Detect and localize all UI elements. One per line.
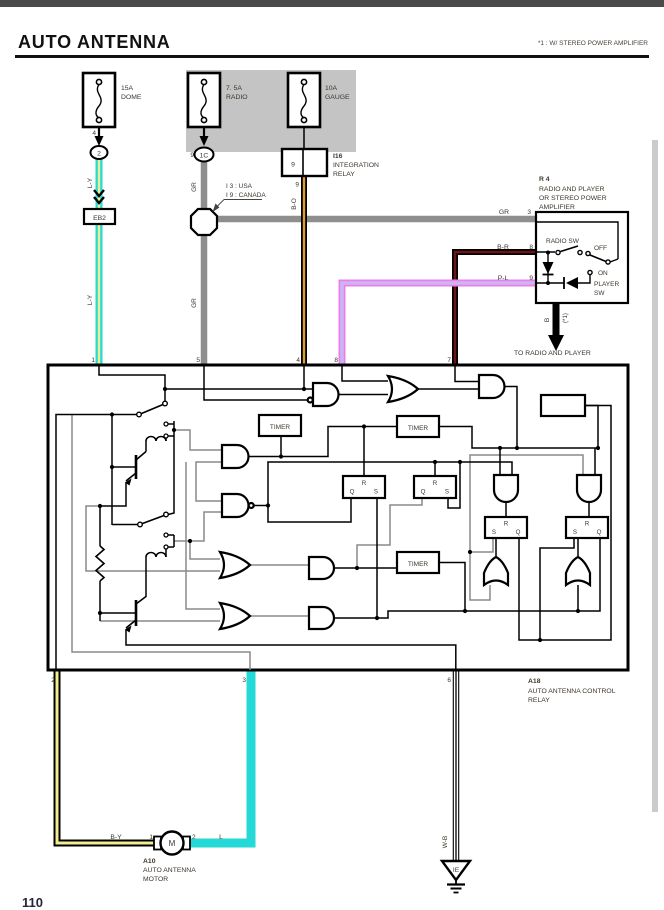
- label-wb: W-B: [442, 836, 449, 849]
- svg-text:R: R: [433, 480, 438, 487]
- nand-gate-b: [222, 494, 249, 517]
- r4-out-note: (*1): [562, 313, 569, 323]
- integration-relay: 9 I16 INTEGRATION RELAY 9: [282, 149, 379, 189]
- eb2-label: EB2: [93, 215, 106, 222]
- timer-3: TIMER: [397, 552, 439, 573]
- label-gr-horizontal: GR: [499, 209, 509, 216]
- a10-pin-left: 1: [149, 834, 153, 841]
- output-arrow-icon: [548, 335, 564, 351]
- fuse-dome: 15A DOME 4 2: [83, 73, 142, 159]
- a18-code: A18: [528, 678, 541, 685]
- nand-gate-g: [313, 383, 339, 406]
- a18-pin8: 8: [334, 357, 338, 364]
- label-ly-1: L-Y: [87, 177, 94, 188]
- r4-name1: RADIO AND PLAYER: [539, 186, 605, 193]
- r4-on-label: ON: [598, 270, 608, 277]
- fuse-radio-rating: 7. 5A: [226, 85, 242, 92]
- r4-radio-sw-label: RADIO SW: [546, 238, 580, 245]
- svg-text:S: S: [374, 489, 378, 496]
- label-gr-1: GR: [191, 182, 198, 192]
- r4-name2: OR STEREO POWER: [539, 195, 607, 202]
- ground-point: IE: [442, 861, 470, 893]
- r4-off-label: OFF: [594, 245, 607, 252]
- label-l: L: [219, 834, 223, 841]
- ground-label: IE: [453, 867, 460, 874]
- r4-pin-gr: 3: [527, 209, 531, 216]
- a18-pin4: 4: [296, 357, 300, 364]
- wire-br: [455, 252, 536, 365]
- fuse-gauge-name: GAUGE: [325, 94, 350, 101]
- a10-code: A10: [143, 858, 156, 865]
- connector-arrow-icon: [95, 136, 104, 146]
- flipflop-1: Q R S: [343, 476, 385, 498]
- r4-to-text: TO RADIO AND PLAYER: [514, 350, 591, 357]
- flipflop-3: S R Q: [485, 517, 527, 538]
- integration-relay-code: I16: [333, 153, 343, 160]
- a10-name1: AUTO ANTENNA: [143, 867, 196, 874]
- a10-name2: MOTOR: [143, 876, 168, 883]
- flipflop-4: S R Q: [566, 517, 608, 538]
- integration-relay-name1: INTEGRATION: [333, 162, 379, 169]
- page-number: 110: [22, 895, 43, 910]
- diagram-canvas: 15A DOME 4 2 7. 5A RADIO 9 1C 10A: [0, 0, 664, 910]
- fuse-dome-connector: 2: [97, 151, 101, 158]
- and-gate-a: [222, 445, 249, 468]
- label-by: B-Y: [110, 834, 122, 841]
- fuse-dome-name: DOME: [121, 94, 142, 101]
- label-bo: B-O: [291, 198, 298, 210]
- timer-2: TIMER: [397, 416, 439, 437]
- svg-text:S: S: [492, 529, 496, 536]
- svg-text:Q: Q: [516, 529, 521, 536]
- timer-1: TIMER: [259, 415, 301, 436]
- a18-pin6: 6: [447, 677, 451, 684]
- r4-out-wire: B: [544, 318, 551, 322]
- a18-name2: RELAY: [528, 697, 550, 704]
- logic-block: [541, 395, 585, 416]
- market-note-line1: I 3 : USA: [226, 183, 253, 190]
- fuse-radio-connector: 1C: [200, 153, 209, 160]
- a18-pin3: 3: [242, 677, 246, 684]
- and-gate-f: [309, 607, 334, 629]
- market-note-line2: I 9 : CANADA: [226, 192, 266, 199]
- a18-pin2: 2: [51, 677, 55, 684]
- a10-pin-right: 2: [192, 834, 196, 841]
- svg-text:TIMER: TIMER: [270, 424, 291, 431]
- and-gate-l: [577, 475, 601, 502]
- fuse-dome-rating: 15A: [121, 85, 134, 92]
- flipflop-2: Q R S: [414, 476, 456, 498]
- wiring-diagram-page: AUTO ANTENNA *1 : W/ STEREO POWER AMPLIF…: [0, 0, 664, 910]
- svg-text:S: S: [573, 529, 577, 536]
- label-gr-2: GR: [191, 298, 198, 308]
- svg-text:R: R: [585, 521, 590, 528]
- nand-input-bubble-icon: [308, 398, 313, 403]
- a18-pin1: 1: [91, 357, 95, 364]
- integration-relay-pin-below: 9: [295, 182, 299, 189]
- wire-pl: [342, 283, 536, 365]
- integration-relay-pin: 9: [291, 162, 295, 169]
- fuse-radio-name: RADIO: [226, 94, 248, 101]
- r4-code: R 4: [539, 176, 550, 183]
- nand-bubble-icon: [249, 503, 254, 508]
- a18-pin7: 7: [447, 357, 451, 364]
- svg-text:TIMER: TIMER: [408, 425, 429, 432]
- and-gate-k: [494, 475, 518, 502]
- r4-box: R 4 RADIO AND PLAYER OR STEREO POWER AMP…: [514, 176, 628, 357]
- integration-relay-name2: RELAY: [333, 171, 355, 178]
- r4-pin-br: 8: [529, 244, 533, 251]
- motor-m-label: M: [169, 839, 176, 848]
- svg-text:Q: Q: [597, 529, 602, 536]
- fuse-gauge-rating: 10A: [325, 85, 338, 92]
- a18-name1: AUTO ANTENNA CONTROL: [528, 688, 616, 695]
- fuse-dome-pin: 4: [92, 130, 96, 137]
- r4-player-label1: PLAYER: [594, 281, 619, 288]
- label-br: B-R: [497, 244, 509, 251]
- svg-text:R: R: [504, 521, 509, 528]
- a18-pin5: 5: [196, 357, 200, 364]
- svg-text:R: R: [362, 480, 367, 487]
- label-ly-2: L-Y: [87, 294, 94, 305]
- r4-player-label2: SW: [594, 290, 605, 297]
- svg-text:S: S: [445, 489, 449, 496]
- label-pl: P-L: [498, 275, 509, 282]
- and-gate-e: [309, 557, 334, 579]
- svg-text:Q: Q: [350, 489, 355, 496]
- r4-name3: AMPLIFIER: [539, 204, 575, 211]
- wire-l-motor: [189, 670, 251, 843]
- svg-text:TIMER: TIMER: [408, 561, 429, 568]
- r4-pin-pl: 9: [529, 275, 533, 282]
- svg-text:Q: Q: [421, 489, 426, 496]
- and-gate-i: [479, 375, 505, 398]
- antenna-motor: M 1 2 A10 AUTO ANTENNA MOTOR: [143, 832, 196, 884]
- wire-by: [57, 670, 157, 843]
